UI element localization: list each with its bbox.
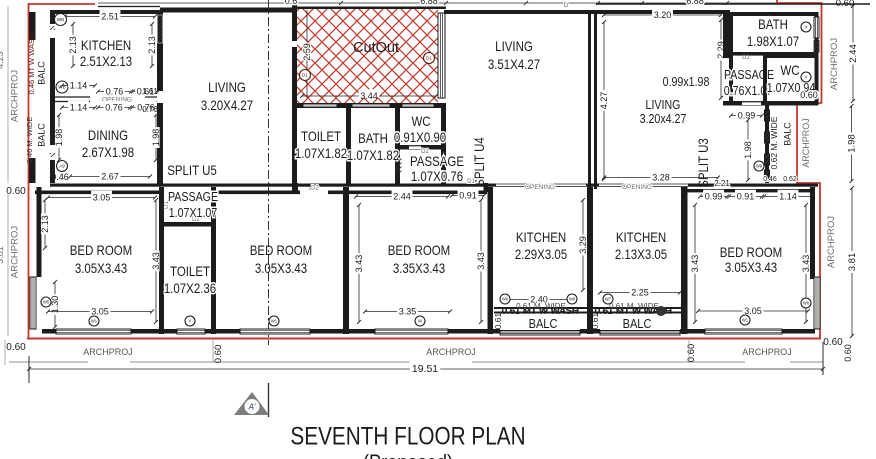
svg-text:0.60: 0.60 bbox=[823, 337, 843, 348]
svg-text:BALC: BALC bbox=[37, 61, 47, 85]
svg-text:1.14: 1.14 bbox=[70, 81, 88, 91]
svg-text:0.76: 0.76 bbox=[105, 103, 123, 113]
svg-text:3.51X4.27: 3.51X4.27 bbox=[488, 56, 540, 72]
svg-text:2.67: 2.67 bbox=[101, 172, 119, 182]
svg-text:BALC: BALC bbox=[623, 316, 652, 331]
svg-text:OPENING: OPENING bbox=[622, 184, 652, 191]
svg-text:TOILET: TOILET bbox=[170, 263, 210, 279]
svg-text:1.30: 1.30 bbox=[50, 296, 60, 314]
svg-text:D2: D2 bbox=[742, 55, 750, 61]
svg-text:WB: WB bbox=[57, 17, 64, 22]
svg-text:3.20x4.27: 3.20x4.27 bbox=[640, 111, 687, 126]
svg-text:ARCHPROJ: ARCHPROJ bbox=[10, 226, 21, 279]
svg-text:1.07X1.07: 1.07X1.07 bbox=[169, 205, 218, 220]
svg-text:3.20: 3.20 bbox=[654, 10, 672, 20]
svg-text:0.60: 0.60 bbox=[6, 342, 26, 353]
svg-text:D: D bbox=[564, 2, 569, 9]
svg-text:6.88: 6.88 bbox=[686, 0, 704, 6]
svg-text:0.46 MT W WASH: 0.46 MT W WASH bbox=[27, 34, 36, 95]
svg-text:V: V bbox=[805, 25, 808, 30]
svg-text:D1: D1 bbox=[302, 73, 308, 78]
svg-text:SPLIT U3: SPLIT U3 bbox=[695, 138, 711, 188]
svg-text:3.05: 3.05 bbox=[744, 306, 762, 316]
svg-text:3.05: 3.05 bbox=[91, 307, 109, 317]
svg-text:BED ROOM: BED ROOM bbox=[250, 242, 312, 258]
svg-text:2.13X3.05: 2.13X3.05 bbox=[615, 246, 667, 262]
svg-text:2.21: 2.21 bbox=[714, 179, 730, 188]
svg-text:ARCHPROJ: ARCHPROJ bbox=[829, 38, 840, 91]
svg-text:3.35: 3.35 bbox=[399, 307, 417, 317]
svg-text:W1: W1 bbox=[742, 318, 749, 323]
svg-text:0.61: 0.61 bbox=[590, 312, 600, 329]
svg-text:0.99x1.98: 0.99x1.98 bbox=[663, 74, 710, 89]
svg-text:ARCHPROJ: ARCHPROJ bbox=[83, 347, 133, 357]
svg-text:ARCHPROJ: ARCHPROJ bbox=[826, 216, 837, 269]
svg-text:0.99: 0.99 bbox=[705, 192, 723, 202]
svg-text:1.98: 1.98 bbox=[847, 134, 858, 153]
svg-text:BATH: BATH bbox=[358, 130, 388, 146]
svg-text:1.07X0.76: 1.07X0.76 bbox=[411, 168, 463, 184]
svg-text:V: V bbox=[805, 75, 808, 80]
svg-text:CutOut: CutOut bbox=[353, 40, 399, 56]
svg-text:W5: W5 bbox=[43, 300, 50, 305]
svg-text:0.60: 0.60 bbox=[843, 344, 853, 362]
svg-text:(Proposed): (Proposed) bbox=[363, 452, 453, 459]
svg-text:2.44: 2.44 bbox=[848, 44, 859, 63]
svg-text:PASSAGE: PASSAGE bbox=[168, 189, 218, 204]
svg-text:BALC: BALC bbox=[529, 316, 558, 331]
svg-text:1.98: 1.98 bbox=[743, 141, 753, 159]
svg-text:1.07X2.36: 1.07X2.36 bbox=[164, 280, 216, 296]
svg-text:2.13: 2.13 bbox=[147, 36, 157, 54]
svg-text:W6: W6 bbox=[803, 301, 810, 306]
svg-text:2.29X3.05: 2.29X3.05 bbox=[515, 246, 567, 262]
svg-text:BED ROOM: BED ROOM bbox=[388, 242, 450, 258]
svg-text:4.27: 4.27 bbox=[599, 92, 609, 110]
svg-text:3.05X3.43: 3.05X3.43 bbox=[725, 259, 777, 275]
svg-text:D1: D1 bbox=[164, 201, 170, 209]
svg-text:LIVING: LIVING bbox=[208, 79, 246, 95]
svg-text:1.61: 1.61 bbox=[142, 87, 158, 96]
svg-text:1.14: 1.14 bbox=[779, 192, 797, 202]
svg-text:0.46: 0.46 bbox=[51, 172, 69, 182]
svg-text:W1: W1 bbox=[91, 319, 98, 324]
svg-text:DINING: DINING bbox=[88, 127, 128, 143]
svg-text:0.60: 0.60 bbox=[686, 344, 697, 363]
svg-text:2.13: 2.13 bbox=[40, 215, 50, 233]
svg-text:BALC: BALC bbox=[783, 122, 793, 146]
svg-text:W: W bbox=[418, 319, 422, 324]
svg-text:ARCHPROJ: ARCHPROJ bbox=[801, 118, 811, 168]
svg-text:D1: D1 bbox=[426, 56, 432, 61]
svg-text:0.61 M. WIDE: 0.61 M. WIDE bbox=[609, 302, 659, 311]
svg-text:1.98: 1.98 bbox=[54, 129, 64, 147]
svg-text:0.99: 0.99 bbox=[738, 111, 756, 121]
svg-text:2.51X2.13: 2.51X2.13 bbox=[80, 53, 132, 69]
svg-text:0.76: 0.76 bbox=[142, 105, 158, 114]
svg-text:0.46: 0.46 bbox=[763, 176, 777, 183]
svg-text:V: V bbox=[189, 319, 192, 324]
svg-text:3.43: 3.43 bbox=[476, 252, 486, 270]
svg-text:3.43: 3.43 bbox=[690, 255, 700, 273]
svg-text:3.44: 3.44 bbox=[360, 91, 378, 101]
svg-text:SEVENTH FLOOR PLAN: SEVENTH FLOOR PLAN bbox=[290, 422, 525, 450]
svg-text:0.62 M. WIDE: 0.62 M. WIDE bbox=[769, 116, 779, 169]
svg-text:1.98X1.07: 1.98X1.07 bbox=[747, 33, 799, 49]
svg-text:1.07X1.82: 1.07X1.82 bbox=[295, 145, 347, 161]
svg-text:WC: WC bbox=[411, 113, 430, 129]
svg-text:0.91: 0.91 bbox=[459, 191, 477, 201]
svg-text:W6: W6 bbox=[502, 297, 509, 302]
svg-text:3.81: 3.81 bbox=[0, 246, 5, 264]
svg-text:1.98: 1.98 bbox=[151, 129, 161, 147]
svg-text:A': A' bbox=[248, 403, 256, 412]
svg-text:0.62: 0.62 bbox=[783, 176, 797, 183]
svg-text:0.61 M. WIDE: 0.61 M. WIDE bbox=[516, 302, 566, 311]
svg-text:6.88: 6.88 bbox=[420, 0, 438, 6]
svg-text:2.25: 2.25 bbox=[631, 288, 649, 298]
svg-text:BATH: BATH bbox=[758, 16, 788, 32]
svg-text:SPLIT U5: SPLIT U5 bbox=[167, 162, 217, 178]
svg-text:3.05X3.43: 3.05X3.43 bbox=[75, 260, 127, 276]
svg-text:0.6: 0.6 bbox=[285, 0, 298, 6]
svg-text:2.44: 2.44 bbox=[393, 192, 411, 202]
svg-text:0.46 M. WIDE: 0.46 M. WIDE bbox=[25, 117, 34, 164]
svg-text:0.60: 0.60 bbox=[6, 186, 26, 197]
svg-text:BALC: BALC bbox=[37, 123, 47, 147]
svg-text:3.35X3.43: 3.35X3.43 bbox=[393, 260, 445, 276]
svg-text:2.51: 2.51 bbox=[101, 12, 119, 22]
svg-text:TOILET: TOILET bbox=[301, 128, 341, 144]
svg-text:2.67X1.98: 2.67X1.98 bbox=[82, 144, 134, 160]
svg-text:W7: W7 bbox=[605, 297, 612, 302]
svg-text:3.29: 3.29 bbox=[578, 236, 588, 254]
svg-text:LIVING: LIVING bbox=[646, 97, 681, 112]
svg-text:BED ROOM: BED ROOM bbox=[70, 242, 132, 258]
svg-text:3.05X3.43: 3.05X3.43 bbox=[255, 260, 307, 276]
svg-text:A9: A9 bbox=[59, 164, 65, 169]
svg-text:0.60: 0.60 bbox=[800, 90, 818, 100]
svg-text:4.23: 4.23 bbox=[0, 51, 5, 69]
svg-text:0.76: 0.76 bbox=[106, 87, 124, 97]
svg-text:D1: D1 bbox=[467, 179, 475, 185]
svg-text:2.13: 2.13 bbox=[68, 36, 78, 54]
svg-text:WC: WC bbox=[780, 62, 799, 78]
svg-text:D2: D2 bbox=[421, 149, 429, 155]
svg-text:W1: W1 bbox=[271, 319, 278, 324]
svg-text:ARCHPROJ: ARCHPROJ bbox=[742, 347, 792, 357]
svg-text:1.14: 1.14 bbox=[70, 103, 88, 113]
svg-text:3.81: 3.81 bbox=[847, 253, 858, 272]
svg-text:ARCHPROJ: ARCHPROJ bbox=[426, 347, 476, 357]
svg-text:KITCHEN: KITCHEN bbox=[516, 229, 566, 245]
svg-text:2.59: 2.59 bbox=[302, 43, 312, 61]
svg-text:3.20X4.27: 3.20X4.27 bbox=[201, 97, 253, 113]
svg-text:W6: W6 bbox=[569, 297, 576, 302]
svg-text:3.43: 3.43 bbox=[151, 252, 161, 270]
svg-text:OPENING: OPENING bbox=[525, 184, 555, 191]
svg-text:D2: D2 bbox=[311, 186, 319, 192]
svg-text:1.07X1.82: 1.07X1.82 bbox=[347, 147, 399, 163]
svg-text:LIVING: LIVING bbox=[495, 38, 533, 54]
svg-text:0.91X0.90: 0.91X0.90 bbox=[394, 129, 446, 145]
svg-text:0.91: 0.91 bbox=[737, 192, 755, 202]
svg-text:KITCHEN: KITCHEN bbox=[616, 229, 666, 245]
svg-text:3.28: 3.28 bbox=[652, 173, 670, 183]
svg-text:PASSAGE: PASSAGE bbox=[410, 153, 464, 169]
svg-text:19.51: 19.51 bbox=[412, 363, 438, 375]
svg-text:ARCHPROJ: ARCHPROJ bbox=[10, 70, 21, 123]
svg-text:BED ROOM: BED ROOM bbox=[720, 244, 782, 260]
svg-text:0.60: 0.60 bbox=[213, 345, 224, 364]
svg-text:3.05: 3.05 bbox=[93, 193, 111, 203]
svg-text:3.43: 3.43 bbox=[354, 255, 364, 273]
svg-text:3.43: 3.43 bbox=[801, 255, 811, 273]
svg-text:W9: W9 bbox=[756, 164, 763, 169]
svg-text:0.61: 0.61 bbox=[493, 312, 503, 329]
svg-text:KITCHEN: KITCHEN bbox=[81, 37, 131, 53]
